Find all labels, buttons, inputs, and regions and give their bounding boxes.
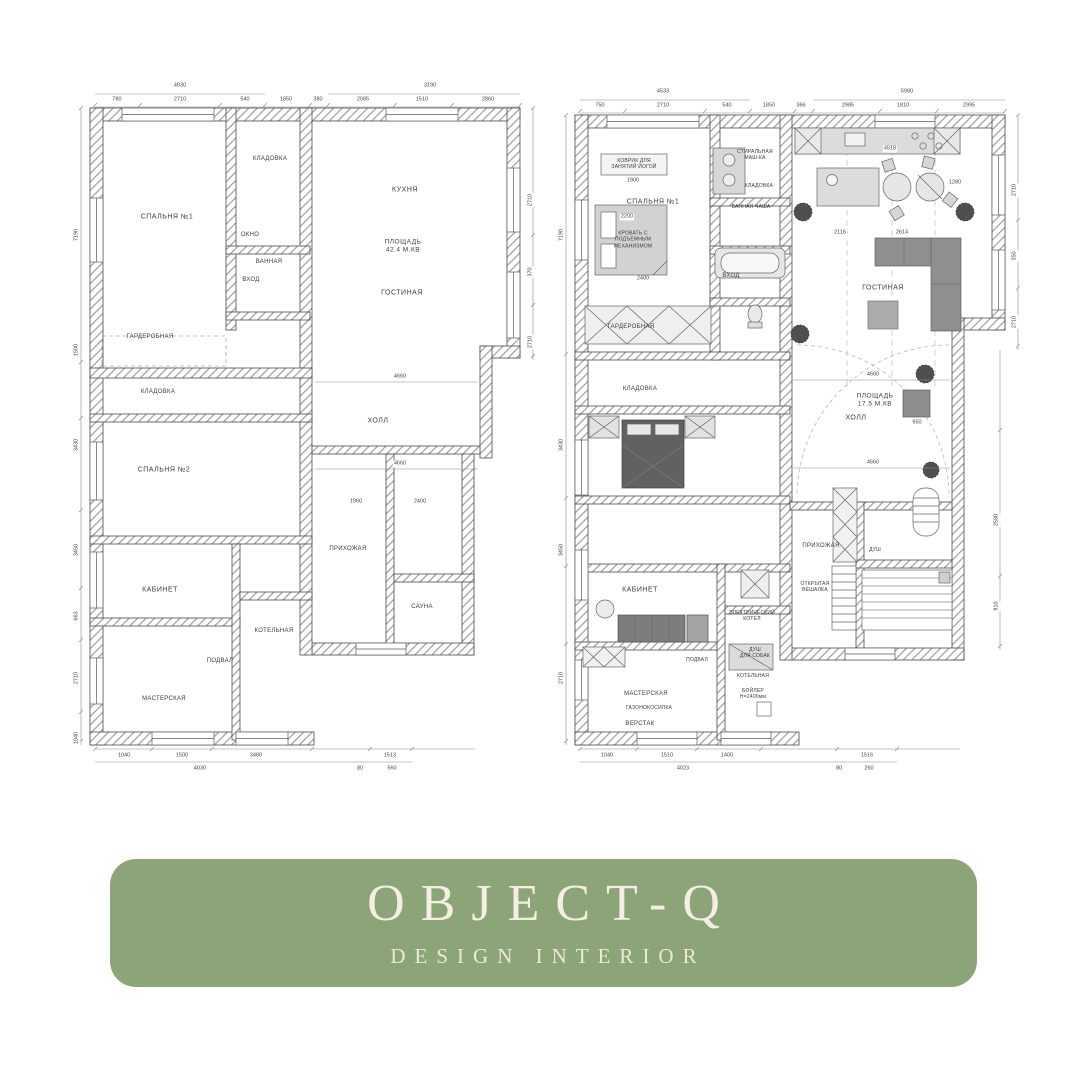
- dimension-label: 2710: [527, 335, 534, 349]
- room-label: СПАЛЬНЯ №1: [627, 197, 680, 206]
- room-label: ВХОД: [722, 273, 739, 281]
- dimension-label: 1280: [948, 179, 962, 186]
- room-label: ПРИХОЖАЯ: [329, 546, 366, 554]
- room-label: ГАРДЕРОБНАЯ: [608, 324, 655, 332]
- dimension-label: 260: [863, 765, 874, 772]
- room-label: КОТЕЛЬНАЯ: [737, 673, 769, 679]
- room-label: КАБИНЕТ: [622, 585, 658, 594]
- room-label: КУХНЯ: [392, 185, 418, 194]
- floor-plan-left: СПАЛЬНЯ №1КЛАДОВКАОКНОВАННАЯВХОДКУХНЯПЛО…: [60, 50, 540, 785]
- dimension-label: 4518: [883, 145, 897, 152]
- dimension-label: 4030: [193, 765, 207, 772]
- dimension-label: 3190: [423, 82, 437, 89]
- dimension-label: 1960: [349, 498, 363, 505]
- dimension-label: 910: [993, 600, 1000, 611]
- room-label: ОКНО: [241, 232, 259, 240]
- room-label: ГАРДЕРОБНАЯ: [127, 334, 174, 342]
- dimension-label: 3450: [558, 543, 565, 557]
- dimension-label: 780: [111, 96, 122, 103]
- dimension-label: 1850: [762, 102, 776, 109]
- room-label: БОЙЛЕР Н=2400мм: [740, 688, 766, 701]
- room-label: ПЛОЩАДЬ 17.5 М.КВ: [857, 393, 894, 410]
- dimension-label: 370: [527, 266, 534, 277]
- dimension-label: 4533: [656, 88, 670, 95]
- room-label: КАБИНЕТ: [142, 585, 178, 594]
- dimension-label: 1513: [383, 752, 397, 759]
- dimension-label: 3430: [73, 438, 80, 452]
- room-label: КЛАДОВКА: [253, 156, 287, 164]
- room-label: ДУШ ДЛЯ СОБАК: [740, 647, 770, 660]
- dimension-label: 350: [1011, 250, 1018, 261]
- dimension-label: 80: [835, 765, 843, 772]
- dimension-label: 1510: [415, 96, 429, 103]
- dimension-label: 1510: [660, 752, 674, 759]
- dimension-label: 1500: [175, 752, 189, 759]
- dimension-label: 80: [356, 765, 364, 772]
- canvas: { "banner": { "title": "OBJECT-Q", "subt…: [0, 0, 1080, 1080]
- dimension-label: 1810: [896, 102, 910, 109]
- room-label: ЭЛЕКТРИЧЕСКИЙ КОТЕЛ: [729, 610, 775, 623]
- dimension-label: 540: [721, 102, 732, 109]
- floor-plan-left-labels: СПАЛЬНЯ №1КЛАДОВКАОКНОВАННАЯВХОДКУХНЯПЛО…: [60, 50, 540, 785]
- room-label: КОВРИК ДЛЯ ЗАНЯТИЙ ЙОГОЙ: [611, 158, 656, 171]
- dimension-label: 2710: [173, 96, 187, 103]
- dimension-label: 1040: [117, 752, 131, 759]
- room-label: ГАЗОНОКОСИЛКА: [626, 705, 672, 711]
- room-label: ПОДВАЛ: [207, 658, 234, 666]
- room-label: ГОСТИНАЯ: [381, 288, 423, 297]
- floor-plan-right-labels: СПАЛЬНЯ №1КОВРИК ДЛЯ ЗАНЯТИЙ ЙОГОЙКРОВАТ…: [545, 50, 1020, 785]
- dimension-label: 2710: [656, 102, 670, 109]
- room-label: САУНА: [411, 604, 433, 612]
- room-label: ГОСТИНАЯ: [862, 283, 904, 292]
- room-label: ВАННАЯ: [256, 259, 283, 267]
- room-label: КЛАДОВКА: [623, 386, 657, 394]
- brand-subtitle: DESIGN INTERIOR: [381, 944, 705, 969]
- dimension-label: 540: [239, 96, 250, 103]
- dimension-label: 4660: [866, 459, 880, 466]
- dimension-label: 750: [594, 102, 605, 109]
- room-label: ПРИХОЖАЯ: [802, 543, 839, 551]
- dimension-label: 950: [911, 419, 922, 426]
- room-label: ОТКРЫТАЯ ВЕШАЛКА: [800, 581, 829, 594]
- dimension-label: 1900: [626, 177, 640, 184]
- room-label: СПАЛЬНЯ №2: [138, 465, 191, 474]
- dimension-label: 3450: [73, 543, 80, 557]
- dimension-label: 1040: [600, 752, 614, 759]
- room-label: КЛАДОВКА: [745, 183, 773, 189]
- dimension-label: 2995: [962, 102, 976, 109]
- dimension-label: 366: [795, 102, 806, 109]
- room-label: ХОЛЛ: [846, 413, 867, 422]
- room-label: СТИРАЛЬНАЯ МАШ-КА: [737, 149, 773, 162]
- dimension-label: 4023: [676, 765, 690, 772]
- dimension-label: 1500: [73, 343, 80, 357]
- dimension-label: 2614: [895, 229, 909, 236]
- dimension-label: 2860: [481, 96, 495, 103]
- room-label: ХОЛЛ: [368, 416, 389, 425]
- room-label: МАСТЕРСКАЯ: [142, 696, 186, 704]
- dimension-label: 380: [312, 96, 323, 103]
- dimension-label: 1400: [720, 752, 734, 759]
- room-label: МАСТЕРСКАЯ: [624, 691, 668, 699]
- dimension-label: 2400: [413, 498, 427, 505]
- dimension-label: 1850: [279, 96, 293, 103]
- dimension-label: 4030: [173, 82, 187, 89]
- brand-banner: OBJECT-Q DESIGN INTERIOR: [110, 859, 977, 987]
- room-label: КОТЕЛЬНАЯ: [254, 628, 293, 636]
- room-label: КРОВАТЬ С ПОДЪЕМНЫМ МЕХАНИЗМОМ: [614, 231, 653, 250]
- dimension-label: 2200: [620, 213, 634, 220]
- room-label: ДУШ: [869, 547, 881, 553]
- dimension-label: 7190: [558, 228, 565, 242]
- dimension-label: 5980: [900, 88, 914, 95]
- dimension-label: 4660: [393, 373, 407, 380]
- dimension-label: 2116: [833, 229, 847, 236]
- room-label: ПЛОЩАДЬ 42.4 М.КВ: [385, 239, 422, 256]
- dimension-label: 2710: [558, 671, 565, 685]
- dimension-label: 2985: [841, 102, 855, 109]
- dimension-label: 2580: [993, 513, 1000, 527]
- room-label: ПОДВАЛ: [686, 657, 708, 663]
- dimension-label: 4660: [393, 460, 407, 467]
- dimension-label: 7190: [73, 228, 80, 242]
- dimension-label: 560: [386, 765, 397, 772]
- dimension-label: 3480: [249, 752, 263, 759]
- dimension-label: 2085: [356, 96, 370, 103]
- floor-plan-right: СПАЛЬНЯ №1КОВРИК ДЛЯ ЗАНЯТИЙ ЙОГОЙКРОВАТ…: [545, 50, 1020, 785]
- room-label: СПАЛЬНЯ №1: [141, 212, 194, 221]
- dimension-label: 2710: [73, 671, 80, 685]
- room-label: ВЕРСТАК: [625, 721, 654, 729]
- dimension-label: 4660: [866, 371, 880, 378]
- dimension-label: 2710: [1011, 183, 1018, 197]
- dimension-label: 2710: [527, 193, 534, 207]
- dimension-label: 2400: [636, 275, 650, 282]
- dimension-label: 1040: [73, 731, 80, 745]
- dimension-label: 663: [73, 610, 80, 621]
- room-label: ВАННАЯ ЧАША: [732, 204, 771, 210]
- room-label: КЛАДОВКА: [141, 389, 175, 397]
- brand-title: OBJECT-Q: [351, 878, 736, 930]
- dimension-label: 1516: [860, 752, 874, 759]
- dimension-label: 3430: [558, 438, 565, 452]
- dimension-label: 2710: [1011, 315, 1018, 329]
- room-label: ВХОД: [242, 277, 259, 285]
